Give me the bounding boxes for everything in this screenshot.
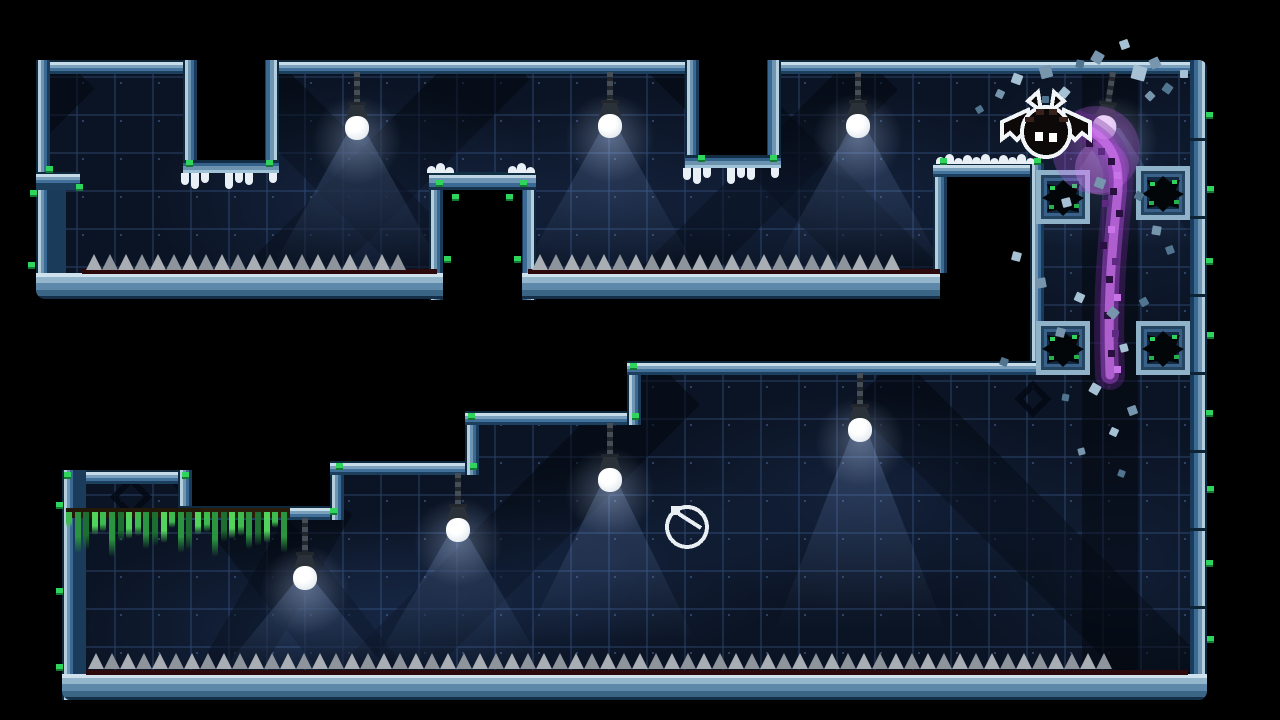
- spike-icon: [184, 653, 200, 669]
- spike-icon: [342, 254, 358, 270]
- moss-tuft: [46, 166, 53, 171]
- spike-icon: [278, 254, 294, 270]
- moss-tuft: [266, 160, 273, 165]
- floor-step: [940, 177, 1037, 300]
- ceiling-block-border: [767, 60, 781, 168]
- snow-cap-icon: [981, 154, 990, 164]
- vine-sprig: [246, 512, 252, 549]
- spike-icon: [198, 254, 214, 270]
- spike-icon: [808, 653, 824, 669]
- vine-sprig: [118, 512, 124, 542]
- lamp: [443, 473, 473, 544]
- vine-sprig: [66, 512, 72, 528]
- spike-row: [532, 253, 936, 270]
- snow-cap-icon: [508, 166, 517, 173]
- spike-icon: [872, 653, 888, 669]
- spike-icon: [792, 653, 808, 669]
- spike-icon: [374, 254, 390, 270]
- vine-sprig: [92, 512, 98, 535]
- spike-icon: [472, 653, 488, 669]
- spike-icon: [520, 653, 536, 669]
- clock-pickup-icon: [657, 497, 717, 557]
- icicle-icon: [235, 173, 243, 183]
- spike-icon: [612, 254, 628, 270]
- moss-tuft: [56, 502, 63, 507]
- vine-sprig: [255, 512, 261, 546]
- spike-icon: [660, 254, 676, 270]
- moss-tuft: [1207, 636, 1214, 641]
- socket-hole-icon: [1136, 321, 1190, 375]
- spike-icon: [936, 653, 952, 669]
- spike-icon: [840, 653, 856, 669]
- snow-cap-icon: [526, 167, 535, 173]
- ceiling-block-border: [183, 160, 279, 173]
- vine-sprig: [100, 512, 106, 532]
- spike-icon: [232, 653, 248, 669]
- spike-icon: [1000, 653, 1016, 669]
- spike-icon: [580, 254, 596, 270]
- vine-sprig: [135, 512, 141, 536]
- spike-icon: [296, 653, 312, 669]
- spike-icon: [772, 254, 788, 270]
- icicle-icon: [269, 173, 277, 183]
- spike-icon: [166, 254, 182, 270]
- spike-icon: [136, 653, 152, 669]
- debris-particle: [1119, 39, 1131, 51]
- chimney-shaft: [443, 190, 522, 300]
- spike-icon: [168, 653, 184, 669]
- icicle-icon: [181, 173, 189, 185]
- moss-tuft: [1206, 560, 1213, 565]
- spike-icon: [456, 653, 472, 669]
- moss-tuft: [444, 256, 451, 261]
- moss-tuft: [1207, 486, 1214, 491]
- spike-icon: [616, 653, 632, 669]
- socket-hole-icon: [1136, 166, 1190, 220]
- game-viewport[interactable]: [0, 0, 1280, 720]
- moss-tuft: [436, 180, 443, 185]
- moss-tuft: [1206, 112, 1213, 117]
- spike-icon: [984, 653, 1000, 669]
- spike-icon: [952, 653, 968, 669]
- spike-icon: [884, 254, 900, 270]
- vine-sprig: [238, 512, 244, 536]
- spike-icon: [424, 653, 440, 669]
- ceiling-border: [36, 60, 184, 74]
- spike-icon: [1048, 653, 1064, 669]
- spike-icon: [692, 254, 708, 270]
- spike-icon: [310, 254, 326, 270]
- vine-sprig: [229, 512, 235, 539]
- spike-icon: [564, 254, 580, 270]
- spike-icon: [408, 653, 424, 669]
- lamp-bulb: [446, 518, 470, 542]
- spike-row: [86, 253, 433, 270]
- bat-player: [998, 92, 1094, 160]
- moss-tuft: [76, 184, 83, 189]
- snow-cap-icon: [954, 158, 963, 164]
- spike-base-strip: [86, 670, 1188, 675]
- spike-icon: [1096, 653, 1112, 669]
- spike-icon: [740, 254, 756, 270]
- spike-icon: [756, 254, 772, 270]
- moss-tuft: [632, 413, 639, 418]
- spike-icon: [264, 653, 280, 669]
- spike-icon: [728, 653, 744, 669]
- spike-icon: [328, 653, 344, 669]
- spike-icon: [1016, 653, 1032, 669]
- icicle-icon: [245, 173, 253, 185]
- spike-icon: [920, 653, 936, 669]
- spike-icon: [788, 254, 804, 270]
- spike-icon: [836, 254, 852, 270]
- spike-icon: [230, 254, 246, 270]
- moss-tuft: [186, 160, 193, 165]
- moss-tuft: [630, 363, 637, 368]
- vine-sprig: [212, 512, 218, 557]
- spike-row: [88, 652, 1186, 669]
- left-wall: [36, 60, 50, 172]
- spike-icon: [632, 653, 648, 669]
- floor-border: [62, 674, 1207, 700]
- spike-icon: [548, 254, 564, 270]
- spike-icon: [648, 653, 664, 669]
- spike-icon: [312, 653, 328, 669]
- ceiling-block-border: [685, 60, 699, 168]
- left-wall: [62, 470, 86, 700]
- spike-icon: [676, 254, 692, 270]
- vine-sprig: [272, 512, 278, 528]
- spike-icon: [360, 653, 376, 669]
- snow-cap-row: [508, 164, 538, 173]
- vine-curtain: [66, 512, 290, 556]
- spike-icon: [102, 254, 118, 270]
- floor-border: [36, 273, 443, 299]
- spike-icon: [568, 653, 584, 669]
- spike-icon: [724, 254, 740, 270]
- icicle-row: [181, 173, 279, 189]
- anchor-block: [1136, 166, 1190, 220]
- lamp: [845, 373, 875, 444]
- spike-icon: [326, 254, 342, 270]
- spike-icon: [820, 254, 836, 270]
- spike-icon: [440, 653, 456, 669]
- lamp: [595, 72, 625, 140]
- wall-segment-line: [1190, 606, 1207, 609]
- icicle-icon: [737, 168, 745, 178]
- moss-tuft: [182, 472, 189, 477]
- wall-segment-line: [1190, 138, 1207, 141]
- spike-icon: [504, 653, 520, 669]
- vine-sprig: [264, 512, 270, 543]
- moss-tuft: [698, 155, 705, 160]
- lamp-bulb: [345, 116, 369, 140]
- spike-icon: [536, 653, 552, 669]
- icicle-icon: [703, 168, 711, 178]
- moss-tuft: [468, 413, 475, 418]
- moss-tuft: [520, 180, 527, 185]
- vine-sprig: [83, 512, 89, 550]
- snow-cap-icon: [436, 163, 445, 173]
- spike-icon: [596, 254, 612, 270]
- spike-icon: [888, 653, 904, 669]
- lamp-bulb: [598, 114, 622, 138]
- spike-icon: [1032, 653, 1048, 669]
- anchor-block: [1136, 321, 1190, 375]
- icicle-icon: [225, 173, 233, 189]
- lamp: [843, 72, 873, 140]
- snow-cap-icon: [427, 166, 436, 173]
- moss-tuft: [330, 508, 337, 513]
- lamp: [595, 423, 625, 494]
- lamp: [342, 72, 372, 142]
- spike-icon: [664, 653, 680, 669]
- spike-icon: [584, 653, 600, 669]
- vine-sprig: [178, 512, 184, 553]
- spike-icon: [1080, 653, 1096, 669]
- spike-icon: [600, 653, 616, 669]
- spike-icon: [182, 254, 198, 270]
- moss-tuft: [452, 194, 459, 199]
- spike-icon: [150, 254, 166, 270]
- moss-tuft: [470, 463, 477, 468]
- vine-sprig: [152, 512, 158, 546]
- ceiling-border: [627, 361, 1044, 375]
- spike-icon: [358, 254, 374, 270]
- lamp-bulb: [598, 468, 622, 492]
- spike-icon: [968, 653, 984, 669]
- vine-sprig: [143, 512, 149, 549]
- spike-icon: [488, 653, 504, 669]
- snow-cap-icon: [963, 155, 972, 164]
- snow-cap-icon: [517, 163, 526, 173]
- icicle-icon: [771, 168, 779, 178]
- ceiling-block: [699, 0, 767, 155]
- vine-sprig: [281, 512, 287, 553]
- spike-icon: [532, 254, 548, 270]
- moss-tuft: [64, 472, 71, 477]
- moss-tuft: [28, 262, 35, 267]
- spike-icon: [134, 254, 150, 270]
- spike-icon: [390, 254, 406, 270]
- moss-tuft: [336, 463, 343, 468]
- spike-icon: [708, 254, 724, 270]
- vine-sprig: [109, 512, 115, 557]
- moss-tuft: [56, 664, 63, 669]
- wall-segment-line: [1190, 294, 1207, 297]
- ceiling-block: [197, 0, 265, 160]
- vine-sprig: [221, 512, 227, 542]
- debris-particle: [1035, 277, 1047, 289]
- spike-icon: [760, 653, 776, 669]
- wall-segment-line: [1190, 528, 1207, 531]
- lamp-bulb: [293, 566, 317, 590]
- lamp: [290, 518, 320, 592]
- spike-icon: [104, 653, 120, 669]
- spike-icon: [776, 653, 792, 669]
- spike-icon: [1064, 653, 1080, 669]
- spike-icon: [696, 653, 712, 669]
- ceiling-border: [278, 60, 687, 74]
- spike-icon: [904, 653, 920, 669]
- vine-sprig: [169, 512, 175, 528]
- wall-segment-line: [1190, 372, 1207, 375]
- snow-cap-row: [427, 164, 457, 173]
- lamp-bulb: [846, 114, 870, 138]
- spike-icon: [628, 254, 644, 270]
- spike-icon: [852, 254, 868, 270]
- wall-ledge: [36, 172, 80, 190]
- spike-icon: [392, 653, 408, 669]
- moss-tuft: [30, 190, 37, 195]
- spike-icon: [744, 653, 760, 669]
- moss-tuft: [1206, 410, 1213, 415]
- vine-sprig: [126, 512, 132, 539]
- left-wall: [36, 190, 66, 273]
- ceiling-block-border: [183, 60, 197, 173]
- icicle-icon: [727, 168, 735, 184]
- spike-icon: [88, 653, 104, 669]
- spike-icon: [214, 254, 230, 270]
- spike-icon: [294, 254, 310, 270]
- spike-icon: [824, 653, 840, 669]
- debris-particle: [1151, 225, 1161, 235]
- right-wall: [1190, 60, 1207, 700]
- spike-icon: [246, 254, 262, 270]
- icicle-icon: [693, 168, 701, 184]
- spike-icon: [152, 653, 168, 669]
- spike-icon: [856, 653, 872, 669]
- icicle-row: [683, 168, 781, 184]
- vine-sprig: [195, 512, 201, 535]
- spike-icon: [804, 254, 820, 270]
- icicle-icon: [191, 173, 199, 189]
- wall-segment-line: [1190, 450, 1207, 453]
- floor-step-border: [933, 163, 1044, 177]
- moss-tuft: [56, 588, 63, 593]
- vine-sprig: [161, 512, 167, 543]
- spike-icon: [552, 653, 568, 669]
- spike-icon: [118, 254, 134, 270]
- spike-icon: [200, 653, 216, 669]
- spike-icon: [376, 653, 392, 669]
- icicle-icon: [683, 168, 691, 180]
- socket-hole-icon: [1036, 170, 1090, 224]
- spike-icon: [712, 653, 728, 669]
- moss-tuft: [1206, 258, 1213, 263]
- spike-icon: [644, 254, 660, 270]
- moss-tuft: [1207, 186, 1214, 191]
- moss-tuft: [1207, 332, 1214, 337]
- spike-icon: [262, 254, 278, 270]
- spike-icon: [248, 653, 264, 669]
- lamp-bulb: [848, 418, 872, 442]
- chain-link-decal: [1015, 381, 1052, 418]
- ceiling-block-border: [265, 60, 279, 173]
- spike-icon: [216, 653, 232, 669]
- moss-tuft: [506, 194, 513, 199]
- snow-cap-icon: [972, 157, 981, 164]
- debris-particle: [1061, 393, 1069, 401]
- icicle-icon: [747, 168, 755, 180]
- wall-segment-line: [1190, 216, 1207, 219]
- debris-particle: [1180, 70, 1188, 78]
- vine-sprig: [204, 512, 210, 532]
- anchor-block: [1036, 170, 1090, 224]
- moss-tuft: [940, 158, 947, 163]
- snow-cap-icon: [445, 167, 454, 173]
- spike-icon: [86, 254, 102, 270]
- spike-icon: [280, 653, 296, 669]
- spike-icon: [680, 653, 696, 669]
- spike-icon: [120, 653, 136, 669]
- debris-particle: [1075, 59, 1084, 68]
- spike-icon: [344, 653, 360, 669]
- spike-icon: [868, 254, 884, 270]
- icicle-icon: [201, 173, 209, 183]
- moss-tuft: [770, 155, 777, 160]
- moss-tuft: [514, 256, 521, 261]
- vine-sprig: [75, 512, 81, 553]
- vine-sprig: [186, 512, 192, 550]
